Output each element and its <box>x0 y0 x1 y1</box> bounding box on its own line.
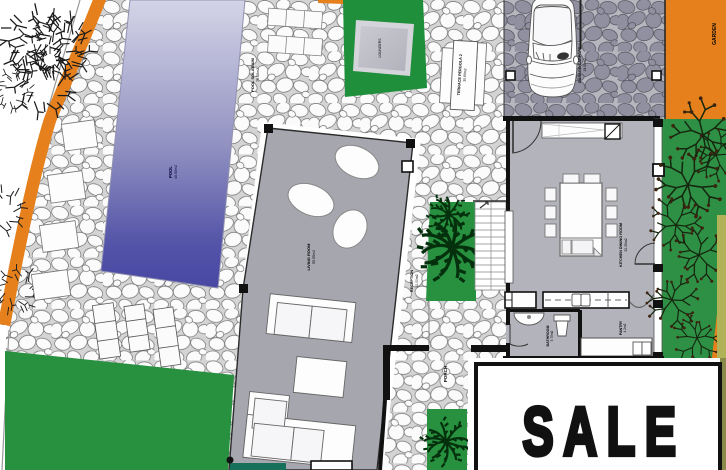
svg-text:32.35m2: 32.35m2 <box>624 238 628 251</box>
svg-text:PORCH: PORCH <box>443 365 448 382</box>
svg-text:GARAGE/CARPORT: GARAGE/CARPORT <box>578 46 582 83</box>
svg-text:40.00m2: 40.00m2 <box>174 165 178 179</box>
svg-text:POOL: POOL <box>168 166 173 178</box>
svg-text:POOL SOLARIUM: POOL SOLARIUM <box>250 57 255 91</box>
svg-text:55.55m2: 55.55m2 <box>312 250 316 264</box>
svg-text:LIVING ROOM: LIVING ROOM <box>306 243 311 271</box>
svg-text:SALE: SALE <box>522 393 685 470</box>
svg-text:LOUNGERS: LOUNGERS <box>378 38 382 58</box>
svg-text:35.80m2: 35.80m2 <box>463 68 468 82</box>
svg-text:19.50m2: 19.50m2 <box>583 58 587 71</box>
svg-text:RECEPTION: RECEPTION <box>410 270 414 292</box>
svg-text:KITCHEN DINING ROOM: KITCHEN DINING ROOM <box>619 223 623 267</box>
svg-text:4.2m2: 4.2m2 <box>623 323 627 332</box>
svg-text:10.00m2: 10.00m2 <box>415 274 419 287</box>
svg-text:5.75m2: 5.75m2 <box>550 330 554 341</box>
svg-text:75.00m2: 75.00m2 <box>256 68 260 82</box>
svg-text:GARDEN: GARDEN <box>712 23 718 45</box>
